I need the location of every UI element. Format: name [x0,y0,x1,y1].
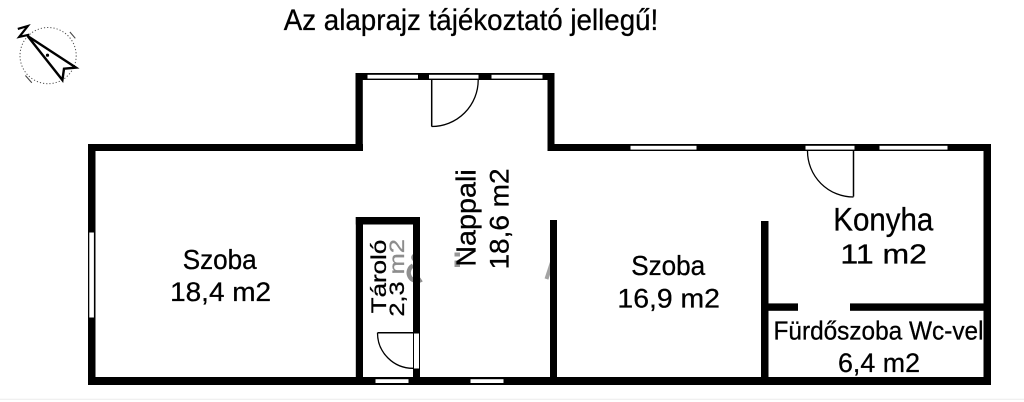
svg-text:Szoba: Szoba [183,244,257,275]
svg-text:Fürdőszoba Wc-vel: Fürdőszoba Wc-vel [774,316,984,346]
svg-text:18,4 m2: 18,4 m2 [170,277,271,307]
svg-text:6,4 m2: 6,4 m2 [838,348,920,378]
svg-text:11 m2: 11 m2 [840,239,927,270]
svg-text:Az alaprajz tájékoztató jelleg: Az alaprajz tájékoztató jellegű! [284,4,659,37]
svg-text:Szoba: Szoba [631,250,705,281]
svg-text:2,3 m2: 2,3 m2 [385,239,409,317]
svg-text:16,9 m2: 16,9 m2 [617,284,720,314]
svg-text:Nappali: Nappali [451,169,482,267]
svg-text:18,6 m2: 18,6 m2 [485,169,515,270]
svg-text:Konyha: Konyha [833,202,933,238]
